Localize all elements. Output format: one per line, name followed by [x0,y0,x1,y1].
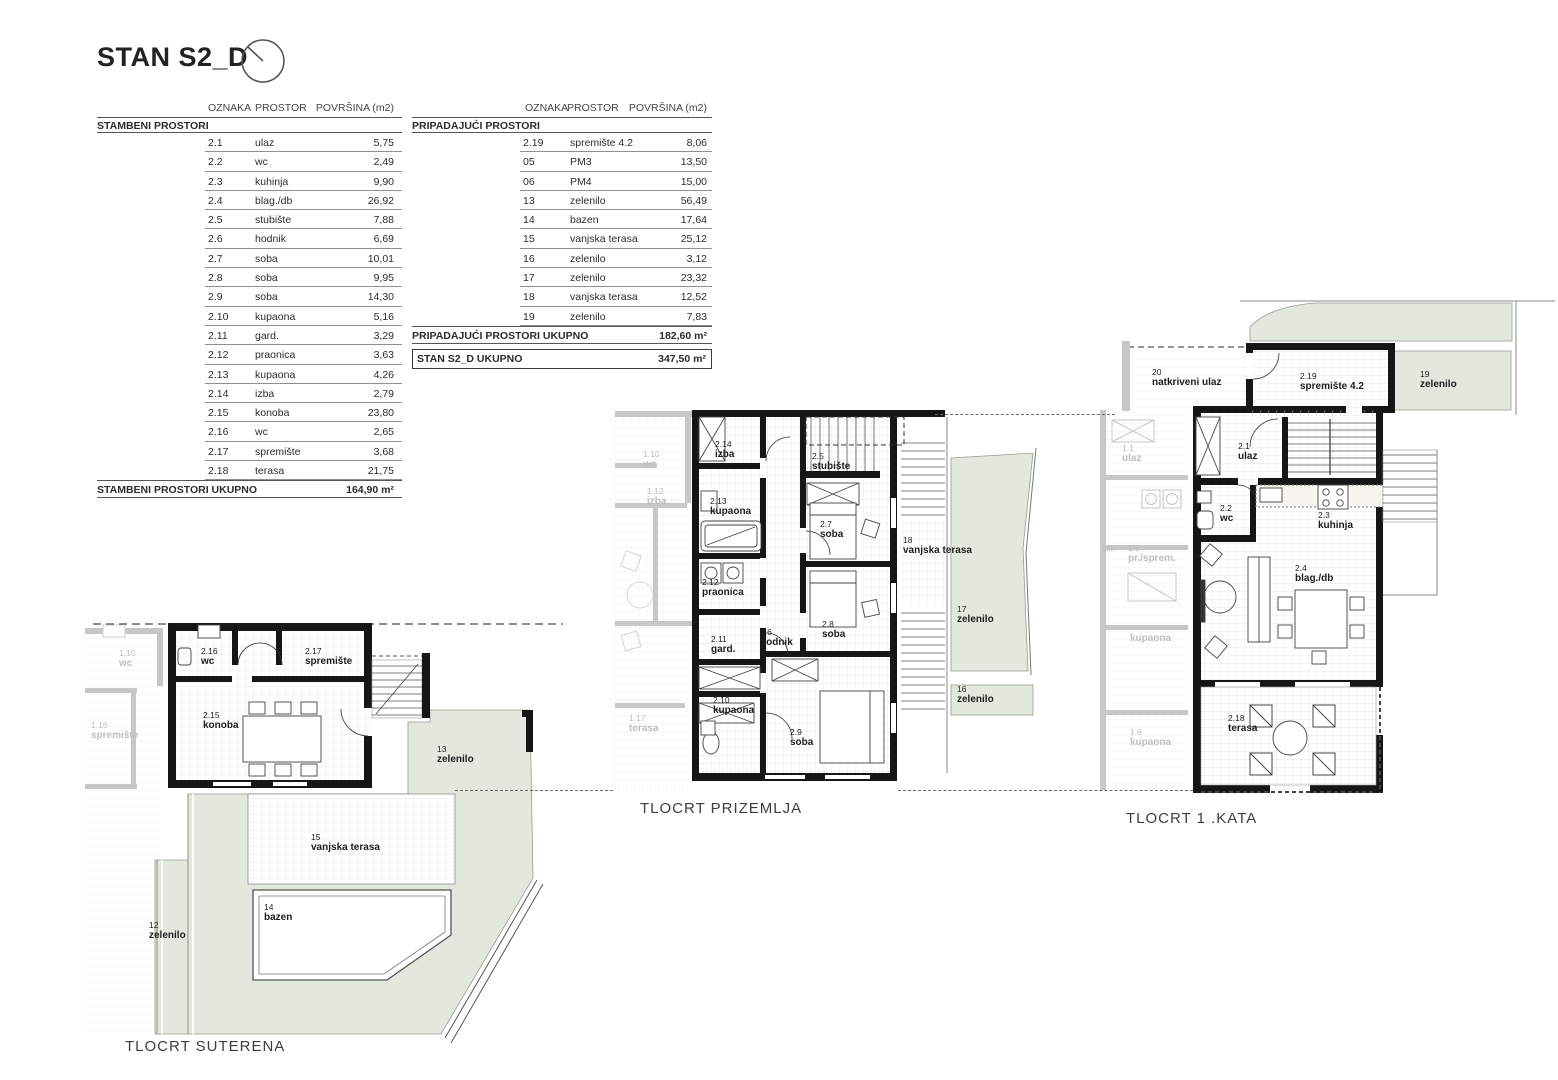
room-label-kupaona-210: 2.10kupaona [713,695,754,717]
external-stairs [1383,450,1437,595]
row-povrsina: 3,68 [374,447,394,458]
room-label-wc-216: 2.16wc [201,646,218,668]
row-prostor: PM3 [570,157,592,168]
row-prostor: kupaona [255,312,295,323]
table-row: 2.8 soba 9,95 [205,268,402,287]
row-oznaka: 2.12 [208,350,228,361]
alignment-dash-line [455,790,613,791]
row-povrsina: 6,69 [374,234,394,245]
row-povrsina: 2,79 [374,389,394,400]
terrace-218 [1201,687,1380,793]
room-label-zelenilo-19: 19zelenilo [1420,369,1457,391]
row-prostor: spremište [255,447,301,458]
row-prostor: hodnik [255,234,286,245]
row-prostor: soba [255,292,278,303]
row-prostor: zelenilo [570,312,606,323]
table-row: 2.12 praonica 3,63 [205,345,402,364]
row-povrsina: 2,49 [374,157,394,168]
row-oznaka: 2.4 [208,196,223,207]
room-label-faded-prsprem-18: 1.8pr./sprem. [1128,543,1176,565]
room-label-wc-22: 2.2wc [1220,503,1233,525]
faded-neighbour [85,625,163,1033]
row-oznaka: 18 [523,292,535,303]
room-label-gard-211: 2.11gard. [711,634,735,656]
row-oznaka: 2.13 [208,370,228,381]
row-prostor: praonica [255,350,295,361]
table-row: 2.18 terasa 21,75 [205,461,402,480]
row-oznaka: 2.1 [208,138,223,149]
row-prostor: zelenilo [570,273,606,284]
room-label-faded-kupaona-16: 1.6kupaona [1130,727,1171,749]
grand-total-value: 347,50 m² [658,354,706,365]
room-label-kuhinja-23: 2.3kuhinja [1318,510,1353,532]
row-povrsina: 26,92 [368,196,394,207]
room-label-faded-wc-115: 1.15wc [119,648,136,670]
row-prostor: wc [255,427,268,438]
row-oznaka: 2.7 [208,254,223,265]
room-label-zelenilo-12: 12zelenilo [149,920,186,942]
table-row: 2.17 spremište 3,68 [205,442,402,461]
external-stairs-strip [897,417,947,773]
grand-total-row: STAN S2_D UKUPNO 347,50 m² [412,349,712,369]
table-row: 18 vanjska terasa 12,52 [520,287,712,306]
row-prostor: ulaz [255,138,274,149]
row-oznaka: 2.15 [208,408,228,419]
row-prostor: izba [255,389,274,400]
row-povrsina: 9,95 [374,273,394,284]
row-povrsina: 23,32 [681,273,707,284]
row-prostor: soba [255,273,278,284]
table-row: 2.9 soba 14,30 [205,287,402,306]
row-oznaka: 2.6 [208,234,223,245]
row-oznaka: 2.5 [208,215,223,226]
total-label: STAMBENI PROSTORI UKUPNO [97,485,257,496]
table-row: 16 zelenilo 3,12 [520,249,712,268]
section-title: PRIPADAJUĆI PROSTORI [412,117,712,133]
row-povrsina: 3,63 [374,350,394,361]
row-povrsina: 13,50 [681,157,707,168]
room-label-soba-29: 2.9soba [790,727,813,749]
table-row: 15 vanjska terasa 25,12 [520,229,712,248]
row-povrsina: 2,65 [374,427,394,438]
col-prostor: PROSTOR [567,103,619,114]
row-oznaka: 2.10 [208,312,228,323]
row-povrsina: 5,16 [374,312,394,323]
table-row: 2.11 gard. 3,29 [205,326,402,345]
table-rows: 2.1 ulaz 5,75 2.2 wc 2,49 2.3 kuhinja 9,… [205,133,402,480]
row-oznaka: 2.11 [208,331,228,342]
row-oznaka: 16 [523,254,535,265]
row-povrsina: 17,64 [681,215,707,226]
table-row: 2.5 stubište 7,88 [205,210,402,229]
table-row: 2.14 izba 2,79 [205,384,402,403]
total-value: 164,90 m² [346,485,394,496]
col-oznaka: OZNAKA [208,103,251,114]
row-povrsina: 7,83 [687,312,707,323]
total-row: STAMBENI PROSTORI UKUPNO 164,90 m² [97,480,402,498]
row-oznaka: 2.18 [208,466,228,477]
plan-title-kat: TLOCRT 1 .KATA [1126,810,1257,827]
room-label-konoba-215: 2.15konoba [203,710,239,732]
room-label-zelenilo-16: 16zelenilo [957,684,994,706]
table-row: 05 PM3 13,50 [520,152,712,171]
plan-prvi-kat: 20natkriveni ulaz 2.19spremište 4.2 19ze… [1100,295,1558,800]
table-row: 2.6 hodnik 6,69 [205,229,402,248]
area-table-pripadajuci: OZNAKA PROSTOR POVRŠINA (m2) PRIPADAJUĆI… [412,100,712,369]
row-povrsina: 10,01 [368,254,394,265]
row-povrsina: 15,00 [681,177,707,188]
room-label-spremiste-219: 2.19spremište 4.2 [1300,371,1364,393]
room-label-faded-wc-110: 1.10wc [643,449,660,471]
room-label-soba-28: 2.8soba [822,619,845,641]
row-prostor: vanjska terasa [570,292,638,303]
row-prostor: zelenilo [570,254,606,265]
row-oznaka: 19 [523,312,535,323]
table-row: 2.3 kuhinja 9,90 [205,172,402,191]
room-label-faded-ulaz-11: 1.1ulaz [1122,443,1141,465]
room-label-soba-27: 2.7soba [820,519,843,541]
row-prostor: stubište [255,215,291,226]
row-povrsina: 23,80 [368,408,394,419]
table-row: 17 zelenilo 23,32 [520,268,712,287]
row-oznaka: 2.14 [208,389,228,400]
table-row: 2.4 blag./db 26,92 [205,191,402,210]
row-prostor: PM4 [570,177,592,188]
table-row: 2.7 soba 10,01 [205,249,402,268]
col-povrsina: POVRŠINA (m2) [316,103,394,114]
row-oznaka: 15 [523,234,535,245]
row-povrsina: 9,90 [374,177,394,188]
room-label-faded-kupaona: kupaona [1130,633,1171,645]
row-oznaka: 17 [523,273,535,284]
row-oznaka: 13 [523,196,535,207]
row-povrsina: 25,12 [681,234,707,245]
table-header: OZNAKA PROSTOR POVRŠINA (m2) [412,100,712,117]
total-value: 182,60 m² [659,331,707,342]
row-povrsina: 8,06 [687,138,707,149]
row-povrsina: 5,75 [374,138,394,149]
row-povrsina: 3,12 [687,254,707,265]
room-label-blagdb-24: 2.4blag./db [1295,563,1333,585]
total-row: PRIPADAJUĆI PROSTORI UKUPNO 182,60 m² [412,326,712,344]
grand-total-label: STAN S2_D UKUPNO [417,354,522,365]
north-arrow-icon [238,36,288,86]
row-oznaka: 2.2 [208,157,223,168]
row-oznaka: 2.17 [208,447,228,458]
row-prostor: kuhinja [255,177,288,188]
room-label-ulaz-21: 2.1ulaz [1238,441,1257,463]
plan-prizemlje: 2.14izba 2.5stubište 2.13kupaona 2.7soba… [615,403,1040,803]
total-label: PRIPADAJUĆI PROSTORI UKUPNO [412,331,588,342]
room-label-terasa-218: 2.18terasa [1228,713,1257,735]
room-label-hodnik-26: 2.6hodnik [760,627,793,649]
row-prostor: vanjska terasa [570,234,638,245]
room-label-izba-214: 2.14izba [715,439,734,461]
row-oznaka: 2.16 [208,427,228,438]
table-row: 2.16 wc 2,65 [205,422,402,441]
row-oznaka: 2.3 [208,177,223,188]
row-povrsina: 56,49 [681,196,707,207]
room-label-bazen-14: 14bazen [264,902,292,924]
row-oznaka: 05 [523,157,535,168]
row-povrsina: 4,26 [374,370,394,381]
alignment-dash-line [935,414,1115,415]
row-povrsina: 21,75 [368,466,394,477]
area-table-stambeni: OZNAKA PROSTOR POVRŠINA (m2) STAMBENI PR… [97,100,402,498]
room-label-vanjska-terasa-18: 18vanjska terasa [903,535,972,557]
row-prostor: zelenilo [570,196,606,207]
room-label-stubiste-25: 2.5stubište [812,451,850,473]
table-row: 2.13 kupaona 4,26 [205,365,402,384]
room-label-faded-hodnik-fragment: lnik [1102,543,1115,553]
col-oznaka: OZNAKA [525,103,568,114]
row-prostor: bazen [570,215,599,226]
stairs [372,653,430,718]
row-oznaka: 14 [523,215,535,226]
row-prostor: gard. [255,331,279,342]
row-oznaka: 06 [523,177,535,188]
table-row: 19 zelenilo 7,83 [520,307,712,326]
alignment-dash-line [898,790,1193,791]
row-prostor: wc [255,157,268,168]
table-row: 2.10 kupaona 5,16 [205,307,402,326]
row-prostor: soba [255,254,278,265]
table-header: OZNAKA PROSTOR POVRŠINA (m2) [97,100,402,117]
plan-title-suterena: TLOCRT SUTERENA [125,1038,285,1055]
row-prostor: spremište 4.2 [570,138,633,149]
table-row: 2.2 wc 2,49 [205,152,402,171]
plan-suterena: 2.16wc 2.17spremište 2.15konoba 13zeleni… [85,598,565,1043]
table-rows: 2.19 spremište 4.2 8,06 05 PM3 13,50 06 … [520,133,712,326]
row-prostor: terasa [255,466,284,477]
row-povrsina: 12,52 [681,292,707,303]
room-label-kupaona-213: 2.13kupaona [710,496,751,518]
room-label-natkriveni-ulaz-20: 20natkriveni ulaz [1152,367,1221,389]
table-row: 14 bazen 17,64 [520,210,712,229]
table-row: 2.1 ulaz 5,75 [205,133,402,152]
room-label-vanjska-terasa-15: 15vanjska terasa [311,832,380,854]
room-label-zelenilo-17: 17zelenilo [957,604,994,626]
row-oznaka: 2.9 [208,292,223,303]
row-povrsina: 3,29 [374,331,394,342]
floor-plan-sheet: STAN S2_D OZNAKA PROSTOR POVRŠINA (m2) S… [0,0,1558,1080]
page-title: STAN S2_D [97,42,248,73]
room-label-faded-izba-112: 1.12izba [647,486,666,508]
row-povrsina: 7,88 [374,215,394,226]
row-prostor: konoba [255,408,289,419]
row-oznaka: 2.19 [523,138,543,149]
col-prostor: PROSTOR [255,103,307,114]
room-label-praonica-212: 2.12praonica [702,577,744,599]
room-label-faded-terasa-117: 1.17terasa [629,713,658,735]
col-povrsina: POVRŠINA (m2) [629,103,707,114]
room-label-faded-spremiste-116: 1.16spremište [91,720,138,742]
row-prostor: kupaona [255,370,295,381]
table-row: 13 zelenilo 56,49 [520,191,712,210]
green-areas [951,448,1036,715]
table-row: 2.15 konoba 23,80 [205,403,402,422]
room-label-spremiste-217: 2.17spremište [305,646,352,668]
room-label-zelenilo-13: 13zelenilo [437,744,474,766]
row-povrsina: 14,30 [368,292,394,303]
section-title: STAMBENI PROSTORI [97,117,402,133]
plan-title-prizemlje: TLOCRT PRIZEMLJA [640,800,802,817]
table-row: 2.19 spremište 4.2 8,06 [520,133,712,152]
row-oznaka: 2.8 [208,273,223,284]
row-prostor: blag./db [255,196,292,207]
table-row: 06 PM4 15,00 [520,172,712,191]
